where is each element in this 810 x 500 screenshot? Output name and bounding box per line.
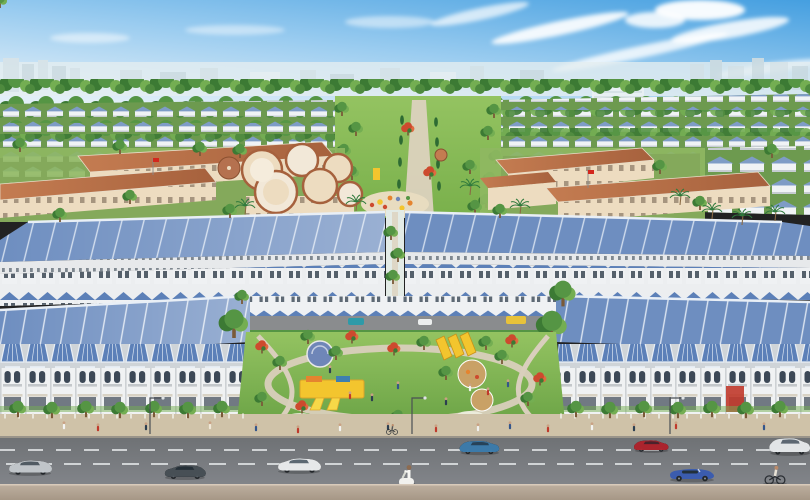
median-strip (0, 484, 810, 500)
cypress (397, 179, 401, 189)
cypress (437, 181, 441, 191)
person (591, 422, 594, 430)
cypress (398, 157, 402, 167)
round-roof-center (250, 158, 274, 182)
gazebo (435, 149, 447, 161)
yellow-slide-upper (373, 168, 380, 180)
middle-row-gables-right (405, 264, 810, 300)
kindergarten-round-buildings (242, 144, 362, 222)
person (63, 421, 66, 429)
white-car (418, 319, 432, 325)
yellow-shuttle (506, 316, 526, 324)
aerial-render-viewport: ​ (0, 0, 810, 500)
person (633, 423, 636, 431)
blue-convertible (670, 469, 714, 482)
person (349, 391, 352, 399)
person (371, 393, 374, 401)
cypress (435, 137, 439, 147)
pavilion-finial (227, 166, 231, 170)
person (507, 379, 510, 387)
person (763, 422, 766, 430)
front-gable-roofs (558, 344, 810, 368)
slab-roof-b-right (556, 296, 810, 350)
shophouse-back-row (0, 203, 810, 306)
person (387, 422, 390, 430)
round-roof-center (263, 179, 289, 205)
person (209, 421, 212, 429)
teal-car (348, 318, 364, 325)
person (509, 421, 512, 429)
cypress (434, 117, 438, 127)
person (435, 424, 438, 432)
person (397, 381, 400, 389)
center-gap (383, 210, 405, 298)
shophouse-front-row-right (558, 344, 810, 414)
person (445, 397, 448, 405)
person (329, 365, 332, 373)
person (477, 423, 480, 431)
aerial-render: ​ (0, 0, 810, 500)
person (469, 383, 472, 391)
person (675, 421, 678, 429)
tan-plaza (471, 389, 493, 411)
cypress (400, 115, 404, 125)
person (297, 425, 300, 433)
boulevard (0, 436, 810, 490)
person (547, 424, 550, 432)
person (97, 423, 100, 431)
cypress (399, 135, 403, 145)
tan-plaza (458, 360, 486, 388)
person (255, 423, 258, 431)
inner-street (250, 296, 556, 337)
front-gable-roofs (0, 344, 246, 368)
person (487, 387, 490, 395)
person (145, 422, 148, 430)
curb (0, 436, 810, 438)
person (339, 423, 342, 431)
